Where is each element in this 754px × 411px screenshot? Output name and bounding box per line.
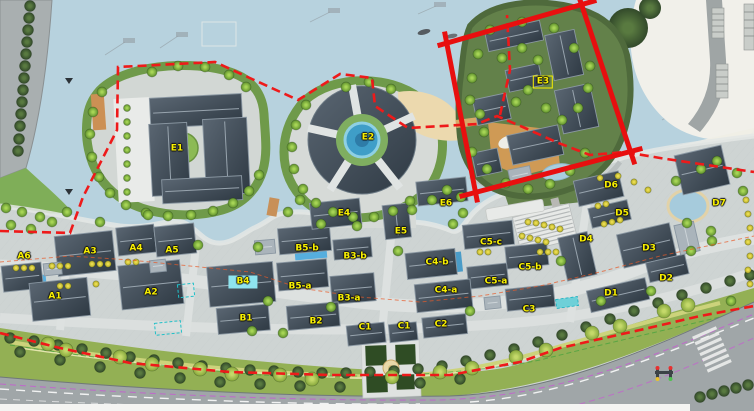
site-plan-canvas	[0, 0, 754, 411]
site-plan-map: E1E2E3E4E5E6A6A3A4A5A1A2B5-bB3-bB4B5-aB3…	[0, 0, 754, 411]
